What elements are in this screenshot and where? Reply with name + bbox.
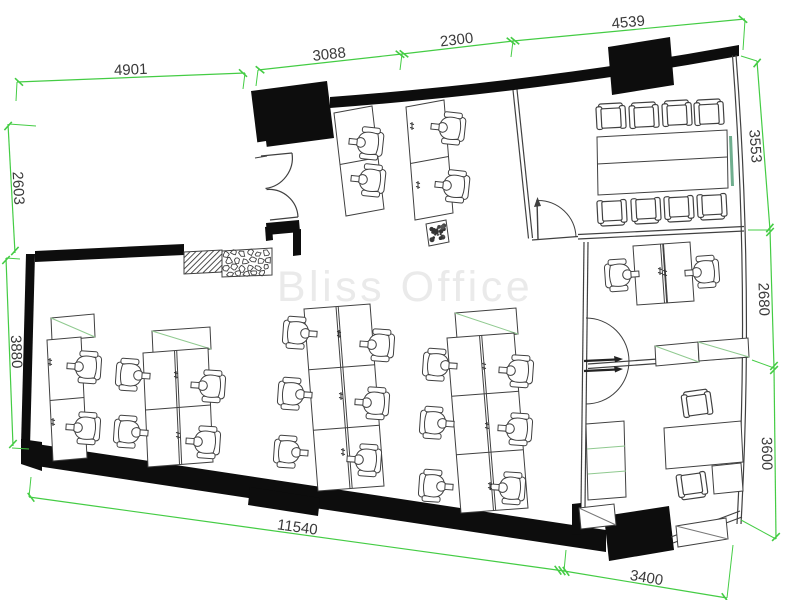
svg-text:2680: 2680 [755,282,773,316]
svg-text:Bliss Office: Bliss Office [277,263,533,311]
svg-text:4901: 4901 [114,61,148,79]
svg-text:3088: 3088 [312,44,347,65]
svg-text:4539: 4539 [611,12,646,32]
svg-text:3600: 3600 [758,437,775,471]
svg-text:3880: 3880 [7,335,25,369]
svg-text:2603: 2603 [9,171,28,205]
svg-text:3553: 3553 [745,129,765,164]
